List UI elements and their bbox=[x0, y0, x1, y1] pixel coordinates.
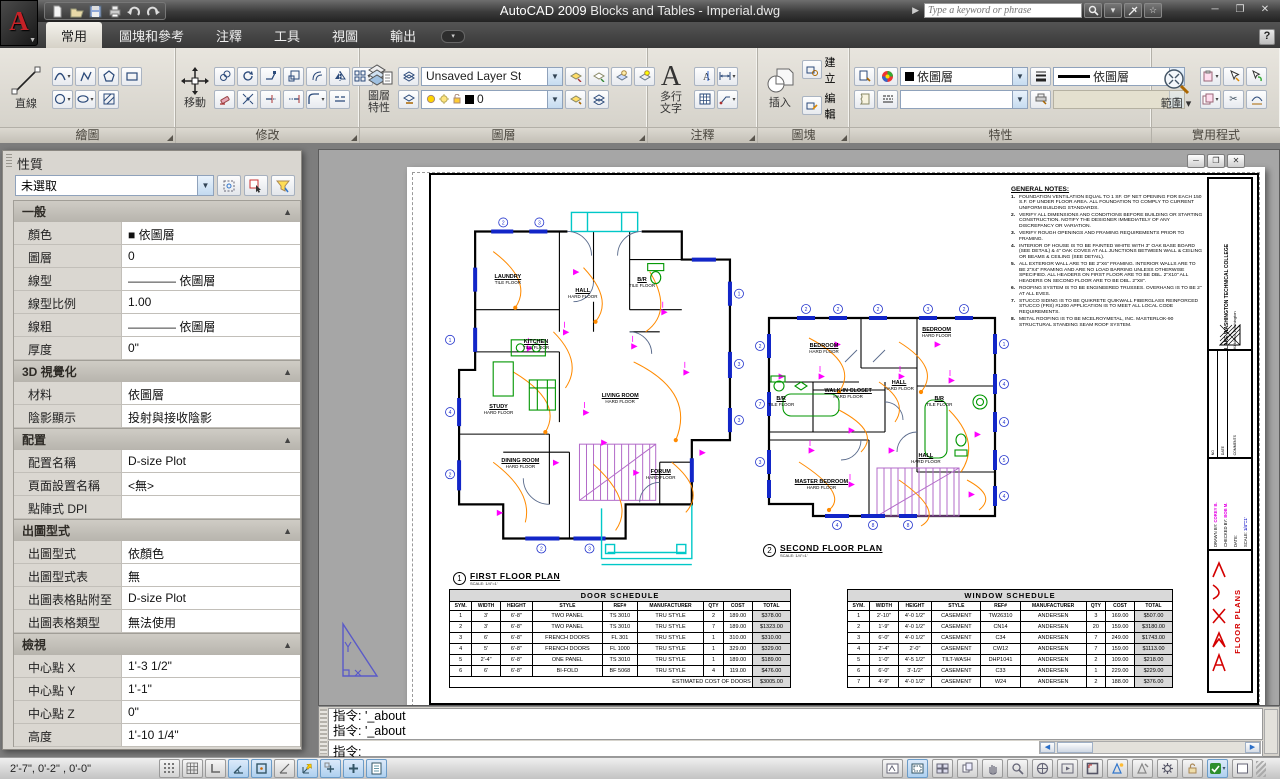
palette-section-header[interactable]: 配置▲ bbox=[13, 428, 301, 450]
command-vertical-scrollbar[interactable] bbox=[1264, 709, 1278, 754]
scroll-right-button[interactable]: ▶ bbox=[1245, 742, 1260, 753]
drawing-area[interactable]: ─ ❐ ✕ bbox=[318, 149, 1280, 706]
help-button[interactable]: ? bbox=[1259, 29, 1275, 45]
property-value[interactable]: 無 bbox=[122, 564, 300, 587]
grid-toggle[interactable] bbox=[182, 759, 203, 778]
erase-button[interactable] bbox=[214, 90, 235, 109]
offset-button[interactable] bbox=[306, 67, 327, 86]
show-motion-icon bbox=[1061, 762, 1074, 775]
property-value[interactable]: 依顏色 bbox=[122, 541, 300, 564]
panel-caption-draw[interactable]: 繪圖 bbox=[0, 127, 175, 143]
model-tab-icon bbox=[886, 762, 899, 775]
property-row: 出圖表格類型無法使用 bbox=[13, 610, 301, 633]
scale-button[interactable] bbox=[283, 67, 304, 86]
grid-icon bbox=[186, 762, 199, 775]
room-label: FORUMHARD FLOOR bbox=[646, 469, 676, 481]
layer-states-button[interactable] bbox=[398, 67, 419, 86]
dialog-launcher-icon[interactable] bbox=[351, 135, 357, 141]
layer-freeze-icon bbox=[616, 70, 628, 82]
snap-toggle[interactable] bbox=[159, 759, 180, 778]
search-dropdown-button[interactable]: ▾ bbox=[1104, 3, 1122, 18]
plot-style-button[interactable] bbox=[1030, 90, 1051, 109]
property-row: 出圖表格貼附至D-size Plot bbox=[13, 587, 301, 610]
svg-text:3: 3 bbox=[588, 547, 591, 553]
revision-table: NO DATE COMMENTS bbox=[1209, 351, 1251, 459]
room-label: LAUNDRYTILE FLOOR bbox=[495, 274, 522, 286]
scale-icon bbox=[288, 70, 300, 82]
layer-states-icon bbox=[403, 70, 415, 82]
hatch-button[interactable] bbox=[98, 90, 119, 109]
printer-icon bbox=[108, 5, 122, 18]
chevron-down-icon[interactable]: ▼ bbox=[197, 176, 213, 195]
otrack-toggle[interactable] bbox=[274, 759, 295, 778]
layer-state-combo[interactable]: Unsaved Layer St▼ bbox=[421, 67, 563, 86]
explode-button[interactable] bbox=[237, 90, 258, 109]
trim-button[interactable] bbox=[260, 90, 281, 109]
coordinate-readout[interactable]: 2'-7", 0'-2" , 0'-0" bbox=[0, 763, 158, 775]
measure-button[interactable] bbox=[1246, 90, 1267, 109]
command-history-line: 指令: '_about bbox=[333, 724, 1262, 739]
panel-block: 插入 建立 編輯 圖塊 bbox=[758, 48, 850, 143]
lock-open-icon bbox=[452, 94, 462, 104]
property-value[interactable]: 投射與接收陰影 bbox=[122, 405, 300, 428]
osnap-toggle[interactable] bbox=[251, 759, 272, 778]
arc-button[interactable]: ▾ bbox=[52, 67, 73, 86]
chevron-down-icon[interactable]: ▼ bbox=[1012, 91, 1027, 108]
property-value[interactable] bbox=[122, 496, 300, 519]
text-a-icon: A bbox=[657, 61, 685, 89]
autocad-logo: A bbox=[1, 1, 37, 41]
property-value[interactable]: 0" bbox=[122, 701, 300, 724]
minimize-ribbon-button[interactable]: ▾ bbox=[441, 30, 465, 43]
property-value[interactable]: 0 bbox=[122, 245, 300, 268]
tab-blocks-references[interactable]: 圖塊和參考 bbox=[104, 22, 199, 48]
svg-text:2: 2 bbox=[759, 344, 762, 350]
column-header: WIDTH bbox=[472, 602, 500, 611]
room-label: BEDROOMHARD FLOOR bbox=[922, 327, 952, 339]
join-button[interactable] bbox=[329, 90, 350, 109]
scrollbar-thumb[interactable] bbox=[1057, 742, 1093, 753]
lineweight-sample bbox=[1058, 75, 1090, 78]
second-floor-plan: 2223214454273488 BEDROOMHARD FLOORBEDROO… bbox=[749, 279, 1017, 547]
svg-text:3: 3 bbox=[927, 307, 930, 313]
palette-section-header[interactable]: 3D 視覺化▲ bbox=[13, 360, 301, 382]
schedule-row: 51'-0"4'-5 1/2"TILT-WASHDHP1041ANDERSEN2… bbox=[848, 655, 1173, 666]
extend-icon bbox=[288, 93, 300, 105]
mirror-button[interactable] bbox=[329, 67, 350, 86]
panel-caption-layers[interactable]: 圖層 bbox=[360, 127, 647, 143]
layer-previous-button[interactable] bbox=[588, 90, 609, 109]
tab-tools[interactable]: 工具 bbox=[259, 22, 315, 48]
layer-freeze-button[interactable] bbox=[611, 67, 632, 86]
object-color-combo[interactable]: 依圖層▼ bbox=[900, 67, 1028, 86]
doc-close-button[interactable]: ✕ bbox=[1227, 154, 1245, 168]
paste-icon bbox=[1202, 70, 1214, 82]
rotate-button[interactable] bbox=[237, 67, 258, 86]
command-window[interactable]: 指令: '_about指令: '_about 指令: ◀ ▶ bbox=[318, 706, 1280, 757]
ortho-toggle[interactable] bbox=[205, 759, 226, 778]
tab-output[interactable]: 輸出 bbox=[375, 22, 431, 48]
panel-modify: 移動 ▾ ▾ bbox=[176, 48, 360, 143]
palette-section-header[interactable]: 檢視▲ bbox=[13, 633, 301, 655]
select-similar-icon bbox=[1251, 70, 1263, 82]
polyline-button[interactable] bbox=[75, 67, 96, 86]
leader-icon bbox=[719, 93, 731, 105]
circle-icon bbox=[54, 93, 66, 105]
window-schedule-table: WINDOW SCHEDULE SYM.WIDTHHEIGHTSTYLEREF#… bbox=[847, 589, 1173, 688]
panel-utilities: 範圍 ▾ ▾ ▾ ✂ 實用程式 bbox=[1152, 48, 1280, 143]
property-value[interactable]: D-size Plot bbox=[122, 450, 300, 473]
color-wheel-icon bbox=[881, 70, 894, 83]
create-block-label[interactable]: 建立 bbox=[825, 54, 845, 86]
table-icon bbox=[699, 93, 711, 105]
quick-properties-icon bbox=[370, 762, 383, 775]
property-value[interactable]: D-size Plot bbox=[122, 587, 300, 610]
linetype-combo[interactable]: ▼ bbox=[900, 90, 1028, 109]
property-value[interactable]: 1'-1" bbox=[122, 678, 300, 701]
property-value[interactable]: 1'-3 1/2" bbox=[122, 655, 300, 678]
palette-title[interactable]: 性質 bbox=[3, 151, 301, 173]
property-label: 顏色 bbox=[14, 222, 122, 245]
property-row: 線型比例1.00 bbox=[13, 291, 301, 314]
color-wheel-button[interactable] bbox=[877, 67, 898, 86]
satellite-icon bbox=[1128, 5, 1139, 16]
save-button[interactable] bbox=[87, 4, 104, 18]
status-bar-grip bbox=[1256, 761, 1266, 777]
open-folder-icon bbox=[70, 5, 84, 18]
column-header: COST bbox=[1106, 602, 1135, 611]
close-button[interactable]: ✕ bbox=[1254, 3, 1276, 17]
polar-toggle[interactable] bbox=[228, 759, 249, 778]
snap-icon bbox=[163, 762, 176, 775]
schedule-row: 23'6'-8"TWO PANELTS 3010TRU STYLE7189.00… bbox=[450, 622, 791, 633]
annotation-visibility-icon bbox=[1111, 762, 1124, 775]
door-schedule-footer-label: ESTIMATED COST OF DOORS bbox=[450, 677, 753, 688]
copy-button[interactable] bbox=[214, 67, 235, 86]
rectangle-icon bbox=[126, 70, 138, 82]
select-similar-button[interactable] bbox=[1246, 67, 1267, 86]
svg-text:2: 2 bbox=[877, 307, 880, 313]
line-button[interactable]: 直線 bbox=[4, 52, 48, 124]
multileader-button[interactable]: ▾ bbox=[717, 90, 738, 109]
quick-select-button[interactable] bbox=[1223, 67, 1244, 86]
dyn-toggle[interactable] bbox=[320, 759, 341, 778]
general-note: 7.STUCCO SIDING IS TO BE QUIKRETE QUIKWA… bbox=[1011, 299, 1203, 316]
property-row: 點陣式 DPI bbox=[13, 496, 301, 519]
dimension-icon bbox=[719, 70, 731, 82]
layer-isolate-button[interactable] bbox=[565, 67, 586, 86]
open-file-button[interactable] bbox=[68, 4, 85, 18]
select-objects-button[interactable] bbox=[244, 175, 268, 196]
property-label: 線粗 bbox=[14, 314, 122, 337]
clean-screen-icon bbox=[1236, 762, 1249, 775]
room-label: MASTER BEDROOMHARD FLOOR bbox=[795, 479, 848, 491]
annotation-autoscale-icon bbox=[1136, 762, 1149, 775]
selection-combo[interactable]: 未選取▼ bbox=[15, 175, 214, 196]
quick-select-button[interactable] bbox=[271, 175, 295, 196]
communication-center-button[interactable] bbox=[1124, 3, 1142, 18]
layout-button[interactable] bbox=[907, 759, 928, 778]
pan-button[interactable] bbox=[982, 759, 1003, 778]
window-title: AutoCAD 2009 Blocks and Tables - Imperia… bbox=[500, 3, 780, 18]
maximize-button[interactable]: ❐ bbox=[1229, 3, 1251, 17]
edit-block-label[interactable]: 編輯 bbox=[825, 90, 845, 122]
pan-hand-icon bbox=[986, 762, 999, 775]
make-object-layer-current-button[interactable] bbox=[565, 90, 586, 109]
doc-restore-button[interactable]: ❐ bbox=[1207, 154, 1225, 168]
match-properties-button[interactable] bbox=[854, 67, 875, 86]
property-row: 圖層0 bbox=[13, 245, 301, 268]
move-button[interactable]: 移動 bbox=[180, 52, 210, 124]
hatch-icon bbox=[103, 93, 115, 105]
property-value[interactable]: 1'-10 1/4" bbox=[122, 724, 300, 747]
insert-block-button[interactable]: 插入 bbox=[762, 52, 798, 124]
column-header: WIDTH bbox=[870, 602, 898, 611]
doc-minimize-button[interactable]: ─ bbox=[1187, 154, 1205, 168]
redo-button[interactable] bbox=[144, 4, 161, 18]
zoom-extents-button[interactable]: 範圍 ▾ bbox=[1156, 52, 1196, 124]
multiline-text-button[interactable]: A 多行文字 bbox=[652, 52, 690, 124]
dialog-launcher-icon[interactable] bbox=[639, 135, 645, 141]
application-status-button[interactable]: ▾ bbox=[1207, 759, 1228, 778]
second-floor-plan-drawing: 2223214454273488 bbox=[749, 279, 1017, 547]
move-icon bbox=[181, 67, 209, 95]
property-label: 中心點 Z bbox=[14, 701, 122, 724]
polygon-button[interactable] bbox=[98, 67, 119, 86]
schedule-row: 74'-9"4'-0 1/2"CASEMENTW24ANDERSEN2188.0… bbox=[848, 677, 1173, 688]
dyn-icon bbox=[324, 762, 337, 775]
collapse-icon[interactable]: ▲ bbox=[283, 526, 292, 536]
property-value[interactable]: 1.00 bbox=[122, 291, 300, 314]
property-value[interactable]: ———— 依圖層 bbox=[122, 268, 300, 291]
column-header: MANUFACTURER bbox=[1020, 602, 1086, 611]
door-schedule-table: DOOR SCHEDULE SYM.WIDTHHEIGHTSTYLEREF#MA… bbox=[449, 589, 791, 688]
zoom-button[interactable] bbox=[1007, 759, 1028, 778]
schedule-row: 13'6'-8"TWO PANELTS 3010TRU STYLE2189.00… bbox=[450, 611, 791, 622]
eraser-icon bbox=[219, 93, 231, 105]
dialog-launcher-icon[interactable] bbox=[841, 135, 847, 141]
search-expand-arrow[interactable]: ▶ bbox=[912, 5, 919, 16]
svg-text:2: 2 bbox=[963, 307, 966, 313]
column-header: TOTAL bbox=[752, 602, 790, 611]
room-label: B/RTILE FLOOR bbox=[926, 396, 952, 408]
chevron-down-icon: ▼ bbox=[29, 37, 36, 44]
create-block-button[interactable] bbox=[802, 60, 822, 79]
schedule-row: 12'-10"4'-0 1/2"CASEMENTTW26310ANDERSEN3… bbox=[848, 611, 1173, 622]
panel-caption-utilities[interactable]: 實用程式 bbox=[1152, 127, 1280, 143]
panel-properties: 依圖層▼ 依圖層▼ ▼ ▼ 特性 bbox=[850, 48, 1152, 143]
fillet-button[interactable]: ▾ bbox=[306, 90, 327, 109]
show-motion-button[interactable] bbox=[1057, 759, 1078, 778]
make-current-icon bbox=[570, 93, 582, 105]
annotation-visibility-button[interactable] bbox=[1107, 759, 1128, 778]
panel-caption-properties[interactable]: 特性 bbox=[850, 127, 1151, 143]
zoom-extents-icon bbox=[1161, 66, 1191, 96]
tab-annotate[interactable]: 注釋 bbox=[201, 22, 257, 48]
current-layer-combo[interactable]: 0 ▼ bbox=[421, 90, 563, 109]
panel-caption-annotate[interactable]: 注釋 bbox=[648, 127, 757, 143]
minimize-button[interactable]: ─ bbox=[1204, 3, 1226, 17]
scroll-left-button[interactable]: ◀ bbox=[1040, 742, 1055, 753]
dialog-launcher-icon[interactable] bbox=[749, 135, 755, 141]
stretch-icon bbox=[265, 70, 277, 82]
column-header: TOTAL bbox=[1135, 602, 1173, 611]
property-row: 顏色■ 依圖層 bbox=[13, 222, 301, 245]
dialog-launcher-icon[interactable] bbox=[167, 135, 173, 141]
edit-block-button[interactable] bbox=[802, 96, 822, 115]
command-history-line: 指令: '_about bbox=[333, 709, 1262, 724]
maximize-viewport-button[interactable] bbox=[1082, 759, 1103, 778]
toggle-pickadd-button[interactable] bbox=[217, 175, 241, 196]
property-label: 出圖表格貼附至 bbox=[14, 587, 122, 610]
room-label: DINING ROOMHARD FLOOR bbox=[501, 458, 539, 470]
favorites-button[interactable]: ☆ bbox=[1144, 3, 1162, 18]
svg-text:3: 3 bbox=[759, 460, 762, 466]
properties-palette: 性質 未選取▼ 一般▲顏色■ 依圖層圖層0線型———— 依圖層線型比例1.00線… bbox=[2, 150, 302, 750]
panel-caption-block[interactable]: 圖塊 bbox=[758, 127, 849, 143]
first-floor-plan-drawing: 2313314223 bbox=[433, 211, 745, 573]
svg-text:3: 3 bbox=[738, 362, 741, 368]
undo-arrow-icon bbox=[127, 5, 141, 18]
table-button[interactable] bbox=[694, 90, 715, 109]
layer-match-button[interactable] bbox=[398, 90, 419, 109]
property-label: 點陣式 DPI bbox=[14, 496, 122, 519]
chevron-down-icon[interactable]: ▼ bbox=[1012, 68, 1027, 85]
dimension-button[interactable]: ▾ bbox=[717, 67, 738, 86]
room-label: LIVING ROOMHARD FLOOR bbox=[602, 393, 639, 405]
quick-view-layouts-icon bbox=[936, 762, 949, 775]
first-floor-plan: 2313314223 LAUNDRYTILE FLOORHALLHARD FLO… bbox=[433, 211, 745, 573]
schedule-row: 36'-0"4'-0 1/2"CASEMENTC34ANDERSEN7249.0… bbox=[848, 633, 1173, 644]
match-properties-icon bbox=[859, 70, 871, 82]
palette-section-header[interactable]: 出圖型式▲ bbox=[13, 519, 301, 541]
single-text-button[interactable]: A bbox=[694, 67, 715, 86]
lineweight-list-button[interactable] bbox=[1030, 67, 1051, 86]
general-note: 8.METAL ROOFING IS TO BE MCELROYMETAL, I… bbox=[1011, 317, 1203, 328]
quick-view-layouts-button[interactable] bbox=[932, 759, 953, 778]
osnap-icon bbox=[255, 762, 268, 775]
property-value[interactable]: ■ 依圖層 bbox=[122, 222, 300, 245]
svg-text:2: 2 bbox=[449, 472, 452, 478]
layer-unisolate-button[interactable] bbox=[588, 67, 609, 86]
lwt-toggle[interactable] bbox=[343, 759, 364, 778]
collapse-icon[interactable]: ▲ bbox=[283, 207, 292, 217]
ellipse-button[interactable]: ▾ bbox=[75, 90, 96, 109]
new-file-icon bbox=[51, 5, 64, 18]
property-row: 高度1'-10 1/4" bbox=[13, 724, 301, 747]
new-file-button[interactable] bbox=[49, 4, 66, 18]
svg-text:2: 2 bbox=[540, 547, 543, 553]
svg-text:3: 3 bbox=[738, 418, 741, 424]
svg-text:4: 4 bbox=[449, 410, 452, 416]
application-menu-button[interactable]: A ▼ bbox=[0, 0, 38, 46]
toolbar-lock-button[interactable] bbox=[1182, 759, 1203, 778]
steering-wheel-button[interactable] bbox=[1032, 759, 1053, 778]
title-block-credits: DRAWN BY: COREY B. CHECKED BY: BOB M. DA… bbox=[1209, 459, 1251, 551]
sheet-title: FLOOR PLANS bbox=[1209, 551, 1251, 691]
first-floor-plan-caption: 1 FIRST FLOOR PLANSCALE: 1/4"=1' bbox=[453, 571, 560, 586]
column-header: QTY bbox=[704, 602, 724, 611]
rectangle-button[interactable] bbox=[121, 67, 142, 86]
palette-section-header[interactable]: 一般▲ bbox=[13, 200, 301, 222]
polar-icon bbox=[232, 762, 245, 775]
circle-button[interactable]: ▾ bbox=[52, 90, 73, 109]
help-search-input[interactable] bbox=[924, 3, 1082, 18]
maximize-viewport-icon bbox=[1086, 762, 1099, 775]
offset-icon bbox=[311, 70, 323, 82]
column-header: SYM. bbox=[848, 602, 870, 611]
collapse-icon[interactable]: ▲ bbox=[283, 435, 292, 445]
extend-button[interactable] bbox=[283, 90, 304, 109]
room-label: BEDROOMHARD FLOOR bbox=[809, 343, 839, 355]
plot-style-icon bbox=[1035, 93, 1047, 105]
status-ok-icon bbox=[1209, 762, 1222, 775]
room-label: HALLHARD FLOOR bbox=[884, 380, 914, 392]
clean-screen-button[interactable] bbox=[1232, 759, 1253, 778]
room-label: WALK-IN CLOSETHARD FLOOR bbox=[824, 388, 871, 400]
quick-view-drawings-button[interactable] bbox=[957, 759, 978, 778]
list-button[interactable] bbox=[854, 90, 875, 109]
arc-icon bbox=[54, 70, 66, 82]
plot-button[interactable] bbox=[106, 4, 123, 18]
chevron-down-icon[interactable]: ▼ bbox=[547, 68, 562, 85]
svg-text:8: 8 bbox=[872, 523, 875, 529]
collapse-icon[interactable]: ▲ bbox=[283, 367, 292, 377]
property-value[interactable]: <無> bbox=[122, 473, 300, 496]
undo-button[interactable] bbox=[125, 4, 142, 18]
command-horizontal-scrollbar[interactable]: ◀ ▶ bbox=[1039, 741, 1261, 754]
property-value[interactable]: ———— 依圖層 bbox=[122, 314, 300, 337]
linetype-list-button[interactable] bbox=[877, 90, 898, 109]
ducs-toggle[interactable] bbox=[297, 759, 318, 778]
tab-home[interactable]: 常用 bbox=[46, 22, 102, 48]
schedule-row: 66'6'-8"BI-FOLDBF 5068TRU STYLE4119.00$4… bbox=[450, 666, 791, 677]
copy-clip-button[interactable]: ▾ bbox=[1200, 90, 1221, 109]
property-value[interactable]: 0" bbox=[122, 337, 300, 360]
quick-properties-toggle[interactable] bbox=[366, 759, 387, 778]
model-button[interactable] bbox=[882, 759, 903, 778]
chevron-down-icon[interactable]: ▼ bbox=[547, 91, 562, 108]
paste-button[interactable]: ▾ bbox=[1200, 67, 1221, 86]
property-row: 頁面設置名稱<無> bbox=[13, 473, 301, 496]
property-row: 線粗———— 依圖層 bbox=[13, 314, 301, 337]
annotation-autoscale-button[interactable] bbox=[1132, 759, 1153, 778]
command-window-grip[interactable] bbox=[320, 709, 327, 754]
property-row: 中心點 Y1'-1" bbox=[13, 678, 301, 701]
workspace-switching-button[interactable] bbox=[1157, 759, 1178, 778]
select-arrow-icon bbox=[249, 179, 263, 193]
svg-text:4: 4 bbox=[836, 523, 839, 529]
lock-icon bbox=[1186, 762, 1199, 775]
layer-unisolate-icon bbox=[593, 70, 605, 82]
layer-properties-button[interactable]: 圖層特性 bbox=[364, 52, 394, 124]
cut-button[interactable]: ✂ bbox=[1223, 90, 1244, 109]
collapse-icon[interactable]: ▲ bbox=[283, 640, 292, 650]
room-label: HALLHARD FLOOR bbox=[911, 453, 941, 465]
command-history: 指令: '_about指令: '_about bbox=[328, 708, 1263, 740]
quick-access-toolbar bbox=[44, 2, 166, 20]
svg-text:1: 1 bbox=[738, 292, 741, 298]
property-value[interactable]: 無法使用 bbox=[122, 610, 300, 633]
panel-caption-modify[interactable]: 修改 bbox=[176, 127, 359, 143]
polygon-icon bbox=[103, 70, 115, 82]
property-value[interactable]: 依圖層 bbox=[122, 382, 300, 405]
gear-icon bbox=[1161, 762, 1174, 775]
stretch-button[interactable] bbox=[260, 67, 281, 86]
search-button[interactable] bbox=[1084, 3, 1102, 18]
tab-view[interactable]: 視圖 bbox=[317, 22, 373, 48]
general-note: 4.INTERIOR OF HOUSE IS TO BE PAINTED WHI… bbox=[1011, 244, 1203, 261]
